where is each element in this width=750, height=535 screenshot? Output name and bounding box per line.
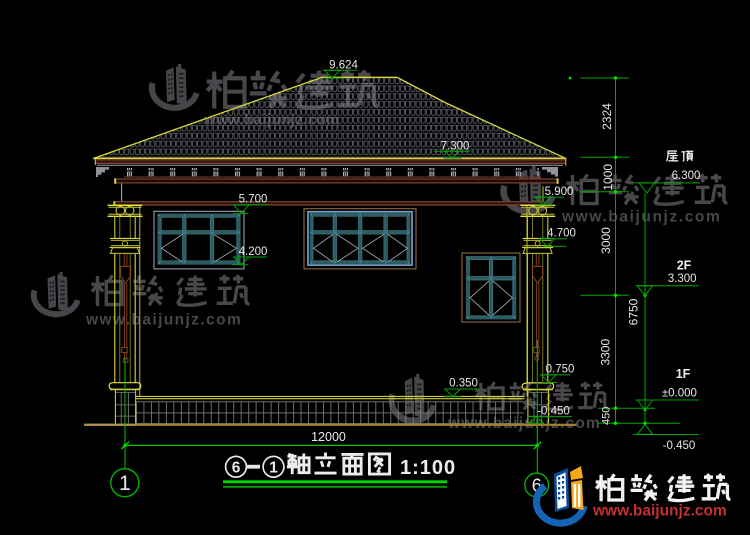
svg-text:0.350: 0.350 xyxy=(449,377,478,389)
svg-text:www.baijunjz.com: www.baijunjz.com xyxy=(592,503,727,520)
svg-text:3300: 3300 xyxy=(599,339,613,366)
svg-text:6: 6 xyxy=(232,459,241,476)
svg-text:±0.000: ±0.000 xyxy=(662,388,697,400)
svg-text:2F: 2F xyxy=(677,259,692,273)
svg-text:1: 1 xyxy=(119,472,131,495)
svg-text:0.750: 0.750 xyxy=(546,364,575,376)
svg-text:4.200: 4.200 xyxy=(239,246,268,258)
svg-text:-0.450: -0.450 xyxy=(663,440,696,452)
svg-text:1:100: 1:100 xyxy=(400,457,456,479)
svg-text:4.700: 4.700 xyxy=(547,228,576,240)
svg-text:3000: 3000 xyxy=(599,227,613,254)
svg-text:2324: 2324 xyxy=(600,103,614,130)
svg-text:5.900: 5.900 xyxy=(545,186,574,198)
svg-text:5.700: 5.700 xyxy=(239,194,268,206)
svg-text:6.300: 6.300 xyxy=(672,170,701,182)
svg-text:1F: 1F xyxy=(676,367,691,381)
svg-text:1: 1 xyxy=(269,459,278,476)
svg-text:www.baijunjz.com: www.baijunjz.com xyxy=(561,209,721,226)
svg-text:450: 450 xyxy=(601,407,613,425)
svg-text:1000: 1000 xyxy=(601,164,615,191)
svg-text:6750: 6750 xyxy=(627,298,641,325)
svg-text:3.300: 3.300 xyxy=(668,273,697,285)
svg-text:-0.450: -0.450 xyxy=(537,406,570,418)
svg-text:7.300: 7.300 xyxy=(441,140,470,152)
svg-text:9.624: 9.624 xyxy=(329,59,358,71)
svg-text:www.baijunjz.com: www.baijunjz.com xyxy=(85,312,242,329)
svg-text:12000: 12000 xyxy=(311,430,346,444)
